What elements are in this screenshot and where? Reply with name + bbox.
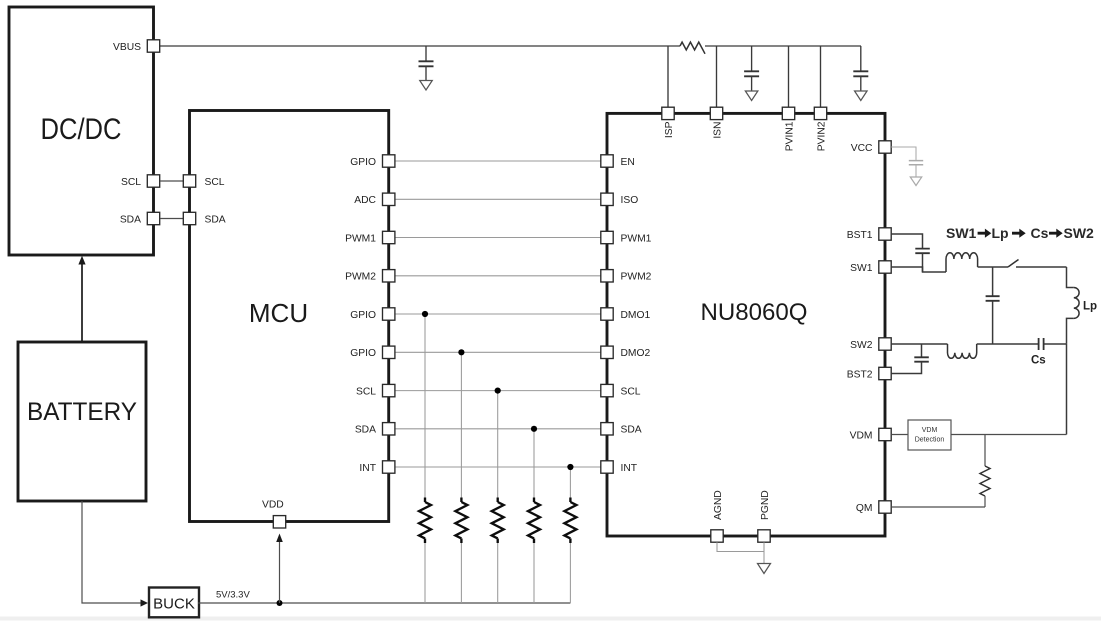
svg-text:PWM1: PWM1 xyxy=(621,233,652,244)
svg-text:SCL: SCL xyxy=(621,386,641,397)
svg-text:INT: INT xyxy=(359,463,376,474)
svg-text:AGND: AGND xyxy=(713,490,724,520)
svg-text:SDA: SDA xyxy=(355,425,376,436)
svg-text:ADC: ADC xyxy=(354,195,376,206)
svg-text:BST1: BST1 xyxy=(847,230,873,241)
svg-text:ISO: ISO xyxy=(621,195,639,206)
svg-text:Detection: Detection xyxy=(915,437,945,444)
svg-text:Lp: Lp xyxy=(992,225,1009,241)
svg-text:DMO2: DMO2 xyxy=(621,348,651,359)
svg-text:VCC: VCC xyxy=(851,143,873,154)
svg-text:VDM: VDM xyxy=(850,430,873,441)
svg-text:NU8060Q: NU8060Q xyxy=(701,299,808,326)
svg-text:Lp: Lp xyxy=(1083,301,1097,313)
svg-text:SW1: SW1 xyxy=(850,263,873,274)
svg-text:MCU: MCU xyxy=(249,298,308,328)
svg-text:BST2: BST2 xyxy=(847,369,873,380)
svg-text:DC/DC: DC/DC xyxy=(41,113,122,146)
svg-text:GPIO: GPIO xyxy=(350,348,376,359)
svg-text:INT: INT xyxy=(621,463,638,474)
svg-text:SDA: SDA xyxy=(205,214,226,225)
svg-text:SDA: SDA xyxy=(120,214,141,225)
svg-text:DMO1: DMO1 xyxy=(621,310,651,321)
svg-text:SDA: SDA xyxy=(621,425,642,436)
svg-text:5V/3.3V: 5V/3.3V xyxy=(216,590,250,601)
svg-text:SW1: SW1 xyxy=(946,225,977,241)
svg-text:BATTERY: BATTERY xyxy=(27,398,137,426)
svg-text:BUCK: BUCK xyxy=(153,596,195,613)
svg-text:GPIO: GPIO xyxy=(350,310,376,321)
svg-text:PWM2: PWM2 xyxy=(345,272,376,283)
svg-text:SW2: SW2 xyxy=(850,340,873,351)
svg-text:SCL: SCL xyxy=(121,177,141,188)
svg-text:SCL: SCL xyxy=(356,386,376,397)
svg-text:PVIN2: PVIN2 xyxy=(816,121,827,151)
svg-text:PWM2: PWM2 xyxy=(621,272,652,283)
svg-text:Cs: Cs xyxy=(1031,355,1046,367)
svg-text:VBUS: VBUS xyxy=(113,42,141,53)
svg-text:ISP: ISP xyxy=(664,121,675,138)
svg-text:ISN: ISN xyxy=(712,122,723,139)
svg-text:PGND: PGND xyxy=(760,490,771,520)
svg-text:SCL: SCL xyxy=(205,177,225,188)
svg-text:VDM: VDM xyxy=(922,427,938,434)
svg-text:EN: EN xyxy=(621,157,635,168)
svg-text:PVIN1: PVIN1 xyxy=(784,121,795,151)
svg-text:GPIO: GPIO xyxy=(350,157,376,168)
svg-text:SW2: SW2 xyxy=(1064,225,1095,241)
svg-text:Cs: Cs xyxy=(1031,225,1049,241)
svg-text:QM: QM xyxy=(856,503,873,514)
svg-text:PWM1: PWM1 xyxy=(345,233,376,244)
svg-text:VDD: VDD xyxy=(262,500,284,511)
